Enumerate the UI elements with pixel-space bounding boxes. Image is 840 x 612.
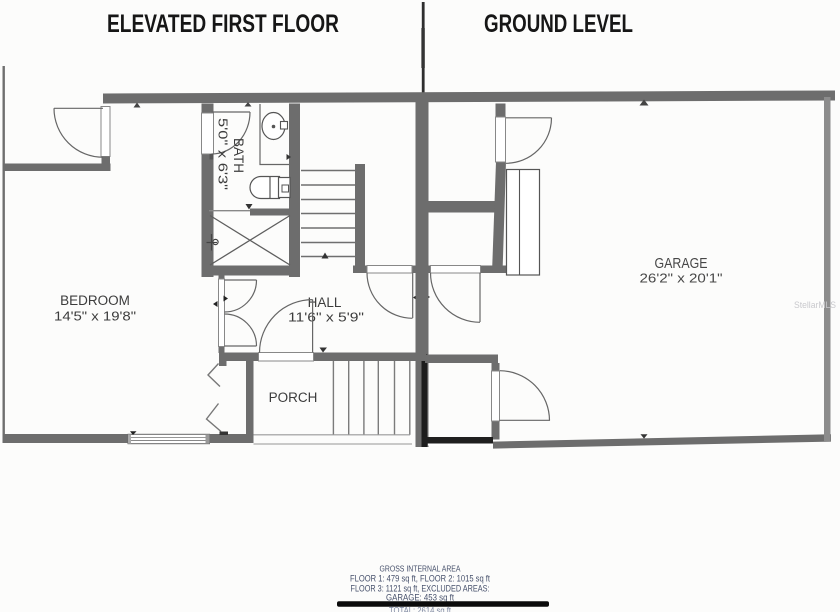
svg-text:BEDROOM: BEDROOM [60,293,130,308]
svg-text:5'0" x 6'3": 5'0" x 6'3" [216,118,230,190]
svg-text:GROUND LEVEL: GROUND LEVEL [484,10,633,38]
svg-text:ELEVATED FIRST FLOOR: ELEVATED FIRST FLOOR [107,10,339,38]
svg-text:GARAGE: 453 sq ft: GARAGE: 453 sq ft [386,592,454,602]
svg-text:26'2" x 20'1": 26'2" x 20'1" [640,271,723,286]
svg-text:BATH: BATH [231,138,246,173]
svg-text:StellarMLS: StellarMLS [794,300,836,311]
svg-text:GROSS INTERNAL AREA: GROSS INTERNAL AREA [380,564,461,574]
svg-text:FLOOR 1: 479 sq ft, FLOOR 2: 1: FLOOR 1: 479 sq ft, FLOOR 2: 1015 sq ft [350,574,490,584]
svg-text:11'6" x 5'9": 11'6" x 5'9" [288,310,364,325]
svg-text:PORCH: PORCH [269,390,318,405]
svg-text:14'5" x 19'8": 14'5" x 19'8" [54,309,136,324]
